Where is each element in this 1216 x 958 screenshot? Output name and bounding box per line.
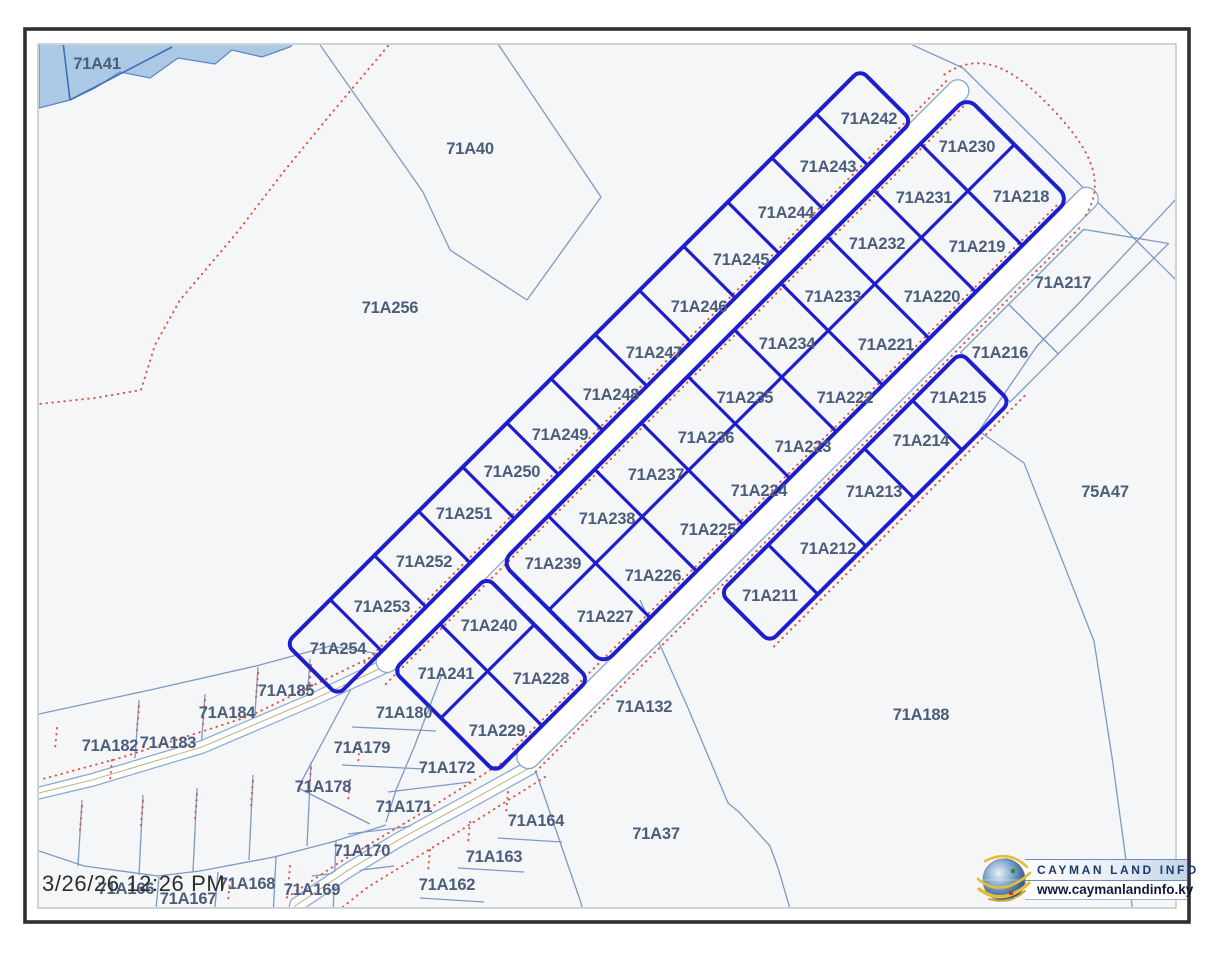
parcel-label-71A185: 71A185 — [258, 682, 315, 700]
parcel-label-71A226: 71A226 — [625, 567, 682, 585]
parcel-label-71A233: 71A233 — [805, 288, 862, 306]
parcel-label-71A169: 71A169 — [284, 881, 341, 899]
map-content: 71A4171A4071A25675A4771A21771A21671A1327… — [39, 0, 1182, 921]
logo-website: www.caymanlandinfo.ky — [1025, 881, 1187, 900]
parcel-label-71A171: 71A171 — [376, 798, 433, 816]
parcel-label-71A244: 71A244 — [758, 204, 816, 222]
parcel-label-71A162: 71A162 — [419, 876, 476, 894]
parcel-label-71A252: 71A252 — [396, 553, 453, 571]
parcel-label-71A246: 71A246 — [671, 298, 728, 316]
parcel-label-71A256: 71A256 — [362, 299, 419, 317]
parcel-label-71A237: 71A237 — [628, 466, 685, 484]
parcel-label-71A212: 71A212 — [800, 540, 857, 558]
parcel-label-71A217: 71A217 — [1035, 274, 1092, 292]
parcel-label-71A218: 71A218 — [993, 188, 1050, 206]
parcel-label-71A241: 71A241 — [418, 665, 475, 683]
parcel-label-71A221: 71A221 — [858, 336, 915, 354]
parcel-label-71A178: 71A178 — [295, 778, 352, 796]
parcel-label-71A163: 71A163 — [466, 848, 523, 866]
cadastral-map: 71A4171A4071A25675A4771A21771A21671A1327… — [0, 0, 1216, 953]
parcel-label-71A234: 71A234 — [759, 335, 817, 353]
parcel-label-75A47: 75A47 — [1081, 483, 1129, 501]
parcel-label-71A216: 71A216 — [972, 344, 1029, 362]
parcel-label-71A132: 71A132 — [616, 698, 673, 716]
parcel-label-71A254: 71A254 — [310, 640, 368, 658]
parcel-label-71A225: 71A225 — [680, 521, 737, 539]
parcel-label-71A179: 71A179 — [334, 739, 391, 757]
parcel-label-71A229: 71A229 — [469, 722, 526, 740]
cayman-land-info-logo: CAYMAN LAND INFO www.caymanlandinfo.ky — [975, 849, 1187, 909]
parcel-label-71A245: 71A245 — [713, 251, 770, 269]
parcel-label-71A253: 71A253 — [354, 598, 411, 616]
parcel-label-71A170: 71A170 — [334, 842, 391, 860]
parcel-label-71A250: 71A250 — [484, 463, 541, 481]
parcel-label-71A251: 71A251 — [436, 505, 493, 523]
parcel-label-71A240: 71A240 — [461, 617, 518, 635]
parcel-label-71A228: 71A228 — [513, 670, 570, 688]
parcel-label-71A232: 71A232 — [849, 235, 906, 253]
parcel-label-71A248: 71A248 — [583, 386, 640, 404]
parcel-label-71A184: 71A184 — [199, 704, 257, 722]
timestamp: 3/26/26 12:26 PM — [42, 871, 225, 897]
parcel-label-71A222: 71A222 — [817, 389, 874, 407]
parcel-label-71A249: 71A249 — [532, 426, 589, 444]
parcel-label-71A215: 71A215 — [930, 389, 987, 407]
globe-green-dot — [1011, 869, 1015, 873]
parcel-label-71A236: 71A236 — [678, 429, 735, 447]
parcel-label-71A214: 71A214 — [893, 432, 951, 450]
parcel-label-71A188: 71A188 — [893, 706, 950, 724]
parcel-label-71A211: 71A211 — [742, 587, 798, 605]
parcel-label-71A213: 71A213 — [846, 483, 903, 501]
parcel-label-71A41: 71A41 — [73, 55, 121, 73]
parcel-label-71A243: 71A243 — [800, 158, 857, 176]
parcel-label-71A37: 71A37 — [632, 825, 680, 843]
logo-title: CAYMAN LAND INFO — [1025, 859, 1187, 881]
parcel-label-71A182: 71A182 — [82, 737, 139, 755]
parcel-label-71A223: 71A223 — [775, 438, 832, 456]
parcel-label-71A40: 71A40 — [446, 140, 494, 158]
map-background — [39, 45, 1175, 907]
parcel-label-71A219: 71A219 — [949, 238, 1006, 256]
parcel-label-71A247: 71A247 — [626, 344, 683, 362]
parcel-label-71A172: 71A172 — [419, 759, 476, 777]
parcel-label-71A238: 71A238 — [579, 510, 636, 528]
parcel-label-71A220: 71A220 — [904, 288, 961, 306]
parcel-label-71A180: 71A180 — [376, 704, 433, 722]
parcel-label-71A242: 71A242 — [841, 110, 898, 128]
parcel-label-71A230: 71A230 — [939, 138, 996, 156]
parcel-label-71A227: 71A227 — [577, 608, 634, 626]
parcel-label-71A239: 71A239 — [525, 555, 582, 573]
globe-red-dot — [1009, 891, 1013, 895]
parcel-label-71A224: 71A224 — [731, 482, 789, 500]
parcel-label-71A235: 71A235 — [717, 389, 774, 407]
parcel-label-71A183: 71A183 — [140, 734, 197, 752]
parcel-label-71A231: 71A231 — [896, 189, 953, 207]
parcel-label-71A168: 71A168 — [219, 875, 276, 893]
globe-icon — [975, 849, 1035, 909]
parcel-label-71A164: 71A164 — [508, 812, 566, 830]
